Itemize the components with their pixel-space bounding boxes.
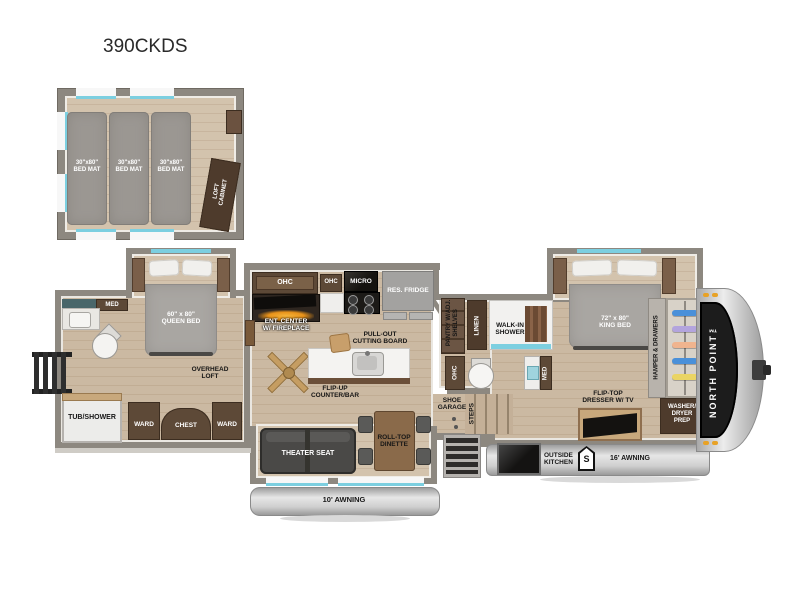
awning-10ft-shadow: [280, 515, 410, 522]
hall-ohc-label: OHC: [451, 343, 458, 403]
slide-window-2: [338, 477, 424, 486]
dresser-label: FLIP-TOPDRESSER W/ TV: [568, 390, 648, 405]
ward-left-label: WARD: [128, 421, 160, 428]
rear-ladder: [32, 352, 72, 394]
fridge-drawer-1: [383, 312, 407, 320]
marker-light-3: [703, 441, 709, 445]
loft-bed-mat-1-label: 30"x80"BED MAT: [67, 160, 107, 174]
loft-window-bottom-2: [130, 229, 174, 240]
outside-kitchen-griddle: [497, 443, 541, 475]
loft-cabinet-label: LOFTCABINET: [209, 161, 233, 222]
loft-ladder-interior: [245, 320, 255, 346]
kitchen-ohc-small-label: OHC: [320, 279, 342, 286]
entry-steps-exterior: [443, 434, 481, 478]
king-bed-label: 72" x 80"KING BED: [585, 315, 645, 330]
mid-walls: [244, 263, 440, 270]
page-title: 390CKDS: [103, 36, 188, 58]
bath-med-label: MED: [543, 343, 550, 403]
marker-light-4: [712, 441, 718, 445]
shoe-garage-label: SHOEGARAGE: [430, 397, 474, 412]
queen-nightstand-left: [132, 258, 145, 292]
dinette-label: ROLL-TOPDINETTE: [368, 434, 420, 449]
kitchen-counter-segment: [320, 293, 344, 313]
shoe-garage-knob-1: [452, 417, 456, 421]
floorplan-canvas: 390CKDS 30"x80"BED MAT 30"x80"BED MAT 30…: [0, 0, 800, 600]
bath-vanity: [524, 356, 540, 390]
rear-bath-backsplash: [62, 299, 96, 308]
king-nightstand-left: [553, 258, 567, 294]
flipup-counter-label: FLIP-UPCOUNTER/BAR: [300, 385, 370, 400]
shoe-garage-knob-2: [454, 425, 458, 429]
loft-bed-mat-2-label: 30"x80"BED MAT: [109, 160, 149, 174]
loft-window-bottom-1: [76, 229, 116, 240]
res-fridge-label: RES. FRIDGE: [382, 287, 434, 294]
ward-right-label: WARD: [212, 421, 242, 428]
awning-10ft-label: 10' AWNING: [250, 496, 438, 505]
s-badge-label: S: [578, 454, 595, 464]
rear-ground-shadow: [55, 448, 251, 453]
queen-bed: [145, 256, 217, 356]
brand-label: NORTH POINT™: [708, 312, 722, 428]
awning-16ft-shadow: [540, 476, 700, 483]
king-slide-window: [577, 249, 641, 253]
tub-shower-label: TUB/SHOWER: [58, 414, 126, 422]
walk-in-shower-label: WALK-INSHOWER: [487, 322, 533, 337]
microwave-label: MICRO: [344, 278, 378, 285]
loft-window-top-2: [130, 88, 174, 99]
chest-label: CHEST: [161, 422, 211, 429]
dinette-chair-1: [358, 416, 373, 433]
awning-16ft-label: 16' AWNING: [600, 455, 660, 463]
flip-top-dresser: [578, 408, 642, 441]
rear-toilet: [92, 329, 120, 357]
queen-nightstand-right: [217, 258, 230, 292]
cutting-board-label: PULL-OUTCUTTING BOARD: [346, 331, 414, 346]
marker-light-2: [712, 293, 718, 297]
queen-bed-label: 60" x 80"QUEEN BED: [150, 311, 212, 326]
loft-bed-mat-3-label: 30"x80"BED MAT: [151, 160, 191, 174]
rear-med-label: MED: [96, 302, 128, 309]
cooktop: [344, 292, 380, 314]
loft-corner-cabinet: [226, 110, 242, 134]
king-nightstand-right: [662, 258, 676, 294]
slide-window-1: [266, 477, 328, 486]
marker-light-1: [703, 293, 709, 297]
rear-sink: [69, 312, 91, 328]
linen-label: LINEN: [473, 296, 480, 356]
hamper-label: HAMPER & DRAWERS: [654, 307, 661, 387]
overhead-loft-label: OVERHEADLOFT: [184, 366, 236, 381]
dinette-chair-3: [416, 416, 431, 433]
hitch-pin: [752, 360, 766, 380]
loft-window-top-1: [76, 88, 116, 99]
queen-slide-window: [151, 249, 211, 253]
theater-seat-label: THEATER SEAT: [260, 450, 356, 458]
ent-center-label: ENT. CENTERW/ FIREPLACE: [248, 318, 324, 333]
fridge-drawer-2: [409, 312, 433, 320]
dinette-chair-4: [416, 448, 431, 465]
dinette-chair-2: [358, 448, 373, 465]
island-sink: [352, 352, 384, 376]
kitchen-ohc-long-label: OHC: [252, 279, 318, 287]
